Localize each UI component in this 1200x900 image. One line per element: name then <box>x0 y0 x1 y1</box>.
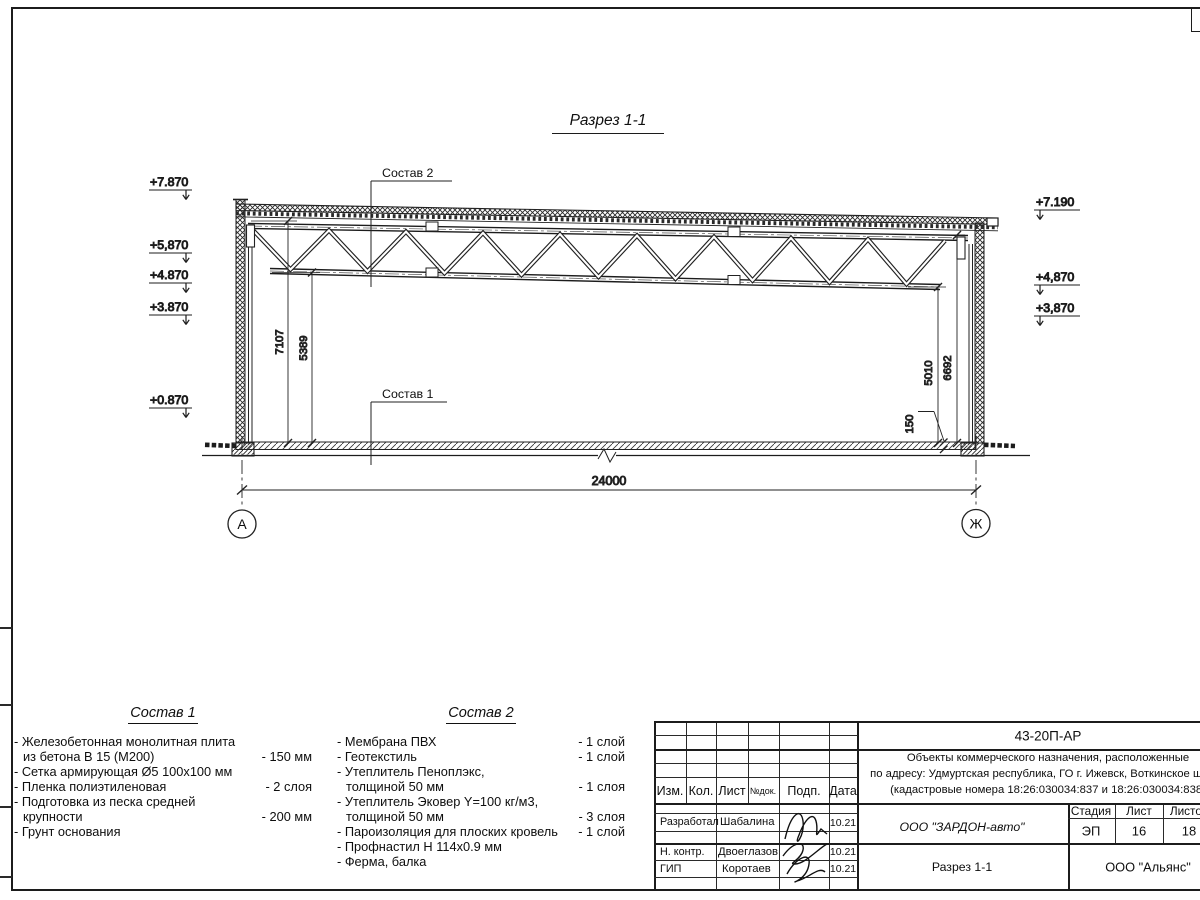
axis-label-zh: Ж <box>970 516 983 532</box>
list-item: - Профнастил Н 114х0.9 мм <box>337 839 625 854</box>
name-dvoeglazov: Двоеглазов <box>718 846 778 858</box>
project-line-3: (кадастровые номера 18:26:030034:837 и 1… <box>890 784 1200 796</box>
list-item: - Утеплитель Пеноплэкс,толщиной 50 мм - … <box>337 764 625 794</box>
elevation-marks-right: +7.190 +4,870 +3,870 <box>1034 195 1080 326</box>
date-0: 10.21 <box>830 817 856 829</box>
list-item: - Пленка полиэтиленовая - 2 слоя <box>14 779 312 794</box>
sheets-value: 18 <box>1182 824 1196 839</box>
signature-dvoeglazov-korotaev <box>779 838 833 886</box>
floor-slab <box>202 442 1030 462</box>
elev-left-1: +5,870 <box>150 238 188 252</box>
role-gip: ГИП <box>660 863 681 875</box>
margin-tick-3 <box>0 806 12 808</box>
frame-bottom <box>12 889 1200 891</box>
margin-tick-2 <box>0 704 12 706</box>
name-korotaev: Коротаев <box>722 863 771 875</box>
splice-plate <box>426 268 438 277</box>
sheet-title: Разрез 1-1 <box>932 860 992 874</box>
list-item: - Ферма, балка <box>337 854 625 869</box>
margin-tick-1 <box>0 627 12 629</box>
stage-header: Стадия <box>1071 804 1111 818</box>
foundation-left <box>232 443 254 456</box>
list-item: - Сетка армирующая Ø5 100х100 мм <box>14 764 312 779</box>
apron-left <box>205 445 236 446</box>
col-ndok: №док. <box>750 786 776 796</box>
list-item: - Пароизоляция для плоских кровель - 1 с… <box>337 824 625 839</box>
sheet-header: Лист <box>1126 804 1152 818</box>
elev-right-0: +7.190 <box>1036 195 1074 209</box>
elev-left-2: +4.870 <box>150 268 188 282</box>
truss <box>247 222 969 290</box>
foundation-right <box>961 443 984 456</box>
col-kol: Кол. <box>689 784 714 798</box>
elevation-marks-left: +7.870 +5,870 +4.870 +3.870 +0.870 <box>149 175 192 418</box>
company-name: ООО "ЗАРДОН-авто" <box>899 820 1024 834</box>
right-wall <box>969 223 984 443</box>
dim-150: 150 <box>904 415 916 434</box>
doc-number: 43-20П-АР <box>1015 729 1082 744</box>
list-item: - Утеплитель Эковер Y=100 кг/м3,толщиной… <box>337 794 625 824</box>
dim-7107: 7107 <box>274 329 286 354</box>
dim-5389: 5389 <box>298 335 310 360</box>
col-data: Дата <box>829 784 857 798</box>
stage-value: ЭП <box>1082 824 1101 839</box>
roof-edge-cap <box>987 218 998 226</box>
role-razrabotal: Разработал <box>660 816 719 828</box>
axis-label-a: А <box>237 516 247 532</box>
list-item: - Подготовка из песка среднейкрупности -… <box>14 794 312 824</box>
list-item: - Грунт основания <box>14 824 312 839</box>
date-1: 10.21 <box>830 846 856 858</box>
elev-right-1: +4,870 <box>1036 270 1074 284</box>
dim-5010: 5010 <box>923 360 935 385</box>
project-line-2: по адресу: Удмуртская республика, ГО г. … <box>870 768 1200 780</box>
contractor-name: ООО "Альянс" <box>1105 860 1191 875</box>
col-list: Лист <box>718 784 745 798</box>
roof-package <box>236 204 998 231</box>
sostav2-list: Состав 2 - Мембрана ПВХ - 1 слой - Геоте… <box>337 706 625 869</box>
splice-plate <box>728 227 740 237</box>
margin-tick-4 <box>0 876 12 878</box>
sostav2-ref-label: Состав 2 <box>382 166 433 180</box>
sostav1-ref-label: Состав 1 <box>382 387 433 401</box>
elev-right-2: +3,870 <box>1036 301 1074 315</box>
splice-plate <box>728 276 740 285</box>
elev-left-0: +7.870 <box>150 175 188 189</box>
dim-6692: 6692 <box>942 355 954 380</box>
list-item: - Мембрана ПВХ - 1 слой <box>337 734 625 749</box>
list-item: - Железобетонная монолитная плитаиз бето… <box>14 734 312 764</box>
date-2: 10.21 <box>830 863 856 875</box>
sheets-header: Листов <box>1170 804 1200 818</box>
sostav1-leader: Состав 1 <box>371 387 447 465</box>
truss-bearing-left <box>247 225 255 247</box>
role-nkontr: Н. контр. <box>660 846 705 858</box>
truss-bearing-right <box>957 237 965 259</box>
span-dimension: 24000 А Ж <box>228 436 990 538</box>
apron-right <box>984 445 1015 446</box>
elev-left-4: +0.870 <box>150 393 188 407</box>
sostav2-title: Состав 2 <box>337 706 625 721</box>
break-symbol <box>598 449 616 462</box>
dim-24000: 24000 <box>592 474 627 488</box>
sostav1-list: Состав 1 - Железобетонная монолитная пли… <box>14 706 312 839</box>
drawing-sheet: Разрез 1-1 <box>0 0 1200 900</box>
section-drawing: Состав 2 Состав 1 +7.870 +5,870 +4.870 +… <box>0 0 1200 560</box>
sostav1-title: Состав 1 <box>14 706 312 721</box>
col-podp: Подп. <box>787 784 820 798</box>
sheet-value: 16 <box>1132 824 1146 839</box>
splice-plate <box>426 222 438 231</box>
name-shabalina: Шабалина <box>720 816 775 828</box>
elev-left-3: +3.870 <box>150 300 188 314</box>
project-line-1: Объекты коммерческого назначения, распол… <box>907 752 1189 764</box>
col-izm: Изм. <box>657 784 684 798</box>
list-item: - Геотекстиль - 1 слой <box>337 749 625 764</box>
